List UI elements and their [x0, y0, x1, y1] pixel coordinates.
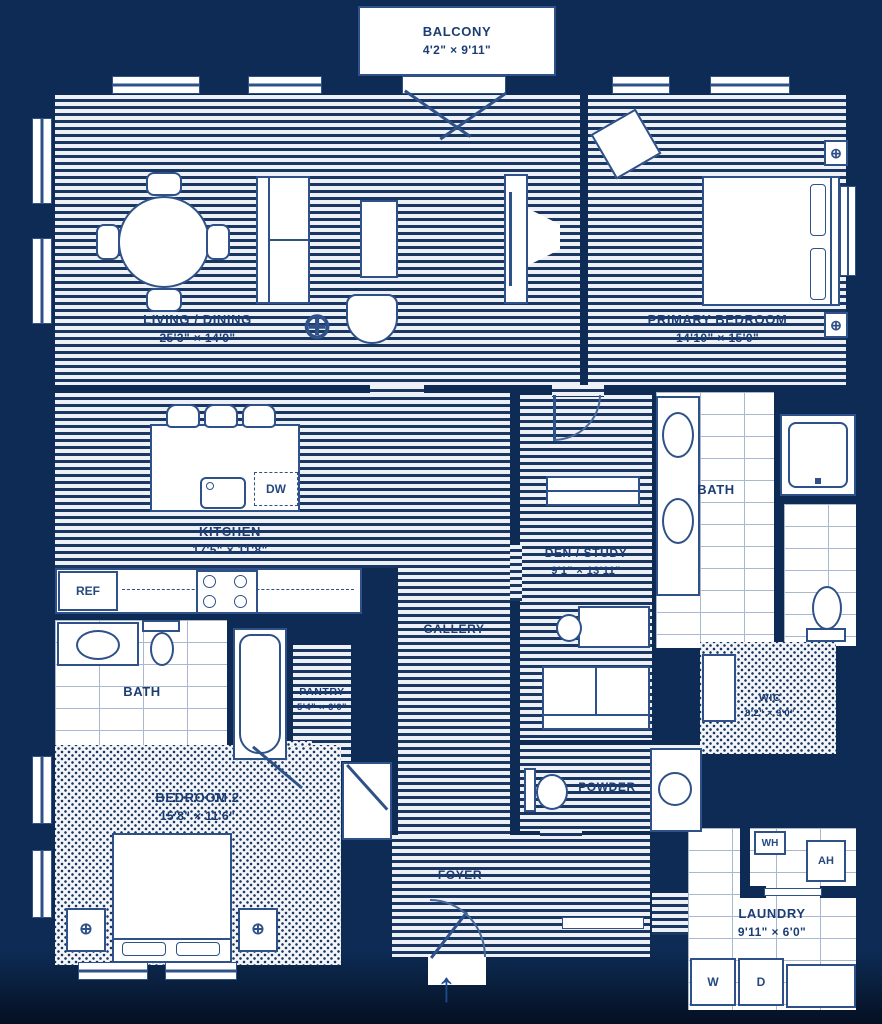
powder-label: POWDER	[552, 780, 662, 796]
foyer-label: FOYER	[400, 868, 520, 884]
laundry-pocket-door	[764, 888, 822, 896]
refrigerator-label: REF	[76, 584, 100, 598]
air-handler-label: AH	[818, 855, 834, 867]
table-lamp-icon: ⊕	[830, 146, 842, 160]
balcony-door-opening	[402, 76, 506, 94]
dining-chair	[206, 224, 230, 260]
pantry-dims: 5'4" × 6'0"	[293, 702, 351, 714]
window-living-top-1	[112, 76, 200, 94]
shower-drain	[815, 478, 821, 484]
kitchen-name: KITCHEN	[140, 524, 320, 541]
dishwasher: DW	[254, 472, 298, 506]
window-bedroom2-left-2	[32, 850, 52, 918]
primary-bath-label: BATH	[666, 482, 766, 499]
water-heater-label: WH	[762, 838, 779, 849]
powder-name: POWDER	[552, 780, 662, 796]
floor-plan: BALCONY 4'2" × 9'11" ⊕	[0, 0, 882, 1024]
loveseat-cushion-line	[595, 668, 597, 716]
bedroom2-dims: 15'8" × 11'6"	[95, 809, 300, 825]
bar-stool	[242, 404, 276, 428]
balcony-dims: 4'2" × 9'11"	[423, 43, 491, 59]
den-dims: 9'1" × 13'11"	[520, 564, 652, 578]
balcony-name: BALCONY	[423, 24, 491, 41]
nightstand: ⊕	[824, 312, 848, 338]
nightstand: ⊕	[824, 140, 848, 166]
laundry-dims: 9'11" × 6'0"	[690, 925, 854, 941]
sink-drain	[206, 482, 214, 490]
laundry-name: LAUNDRY	[690, 906, 854, 923]
window-living-left-1	[32, 118, 52, 204]
dining-chair	[96, 224, 120, 260]
table-lamp-icon: ⊕	[251, 922, 264, 938]
primary-name: PRIMARY BEDROOM	[610, 312, 825, 329]
refrigerator: REF	[58, 571, 118, 611]
laundry-wall	[740, 828, 750, 894]
kitchen-dims: 17'5" × 11'8"	[140, 543, 320, 559]
dining-table	[118, 196, 210, 288]
bed-headboard-line	[114, 938, 230, 940]
wic-name: WIC	[730, 692, 810, 706]
pillow	[810, 184, 826, 236]
primary-bath-name: BATH	[666, 482, 766, 499]
window-bedroom2-bottom-2	[165, 962, 237, 980]
living-dims: 25'3" × 14'9"	[85, 331, 310, 347]
living-name: LIVING / DINING	[85, 312, 310, 329]
bath2-label: BATH	[92, 684, 192, 701]
tv-screen	[509, 192, 512, 286]
burner	[234, 595, 247, 608]
bedroom2-name: BEDROOM 2	[95, 790, 300, 807]
window-primary-top-1	[612, 76, 670, 94]
dining-chair	[146, 288, 182, 312]
window-primary-top-2	[710, 76, 790, 94]
toilet-bowl	[150, 632, 174, 666]
laundry-wall	[820, 886, 856, 898]
armchair	[360, 200, 398, 278]
bathtub	[239, 634, 281, 754]
dishwasher-label: DW	[266, 482, 286, 496]
vanity-sink	[662, 412, 694, 458]
primary-label: PRIMARY BEDROOM 14'10" × 15'0"	[610, 312, 825, 346]
living-label: LIVING / DINING 25'3" × 14'9"	[85, 312, 310, 346]
entry-arrow-icon: ↑	[436, 966, 457, 1008]
balcony-label: BALCONY 4'2" × 9'11"	[423, 24, 491, 58]
foyer-name: FOYER	[400, 868, 520, 884]
coat-closet	[342, 762, 392, 840]
pillow	[122, 942, 166, 956]
kitchen-label: KITCHEN 17'5" × 11'8"	[140, 524, 320, 558]
pillow	[810, 248, 826, 300]
primary-dims: 14'10" × 15'0"	[610, 331, 825, 347]
bar-stool	[166, 404, 200, 428]
wic-label: WIC 8'2" × 9'0"	[730, 692, 810, 720]
table-lamp-icon: ⊕	[79, 922, 92, 938]
desk-chair	[556, 614, 582, 642]
opening-powder-foyer	[540, 829, 582, 837]
toilet-tank	[142, 620, 180, 632]
tv-console	[504, 174, 528, 304]
dryer-label: D	[757, 975, 766, 989]
laundry-counter	[786, 964, 856, 1008]
opening-foyer-laundry	[652, 893, 688, 935]
den-name: DEN / STUDY	[520, 546, 652, 562]
air-handler: AH	[806, 840, 846, 882]
bath2-sink	[76, 630, 120, 660]
desk	[578, 606, 650, 648]
nightstand: ⊕	[66, 908, 106, 952]
nightstand: ⊕	[238, 908, 278, 952]
dryer: D	[738, 958, 784, 1006]
laundry-wall	[740, 886, 766, 898]
gallery-name: GALLERY	[398, 622, 510, 638]
window-living-top-2	[248, 76, 322, 94]
washer-label: W	[707, 975, 718, 989]
bed-headboard-line	[830, 178, 832, 304]
barrel-chair	[346, 294, 398, 344]
pillow	[176, 942, 220, 956]
toilet-tank	[524, 768, 536, 812]
table-lamp-icon: ⊕	[830, 318, 842, 332]
water-heater: WH	[754, 831, 786, 855]
den-label: DEN / STUDY 9'1" × 13'11"	[520, 546, 652, 578]
sofa-cushion-line	[270, 239, 308, 241]
wic-dims: 8'2" × 9'0"	[730, 708, 810, 720]
room-balcony: BALCONY 4'2" × 9'11"	[358, 6, 556, 76]
toilet-tank	[806, 628, 846, 642]
bath2-name: BATH	[92, 684, 192, 701]
vanity-sink	[662, 498, 694, 544]
gallery-label: GALLERY	[398, 622, 510, 638]
bedroom2-label: BEDROOM 2 15'8" × 11'6"	[95, 790, 300, 824]
pantry-name: PANTRY	[293, 686, 351, 700]
window-living-left-2	[32, 238, 52, 324]
burner	[203, 575, 216, 588]
opening-living-gallery	[370, 385, 424, 395]
pantry-label: PANTRY 5'4" × 6'0"	[293, 686, 351, 714]
window-bedroom2-bottom-1	[78, 962, 148, 980]
burner	[234, 575, 247, 588]
washer: W	[690, 958, 736, 1006]
foyer-bench	[562, 917, 644, 929]
window-primary-right	[840, 186, 856, 276]
toilet-bowl	[812, 586, 842, 630]
laundry-label: LAUNDRY 9'11" × 6'0"	[690, 906, 854, 940]
bar-stool	[204, 404, 238, 428]
window-bedroom2-left-1	[32, 756, 52, 824]
den-console-line	[548, 490, 638, 492]
dining-chair	[146, 172, 182, 196]
burner	[203, 595, 216, 608]
powder-sink	[658, 772, 692, 806]
